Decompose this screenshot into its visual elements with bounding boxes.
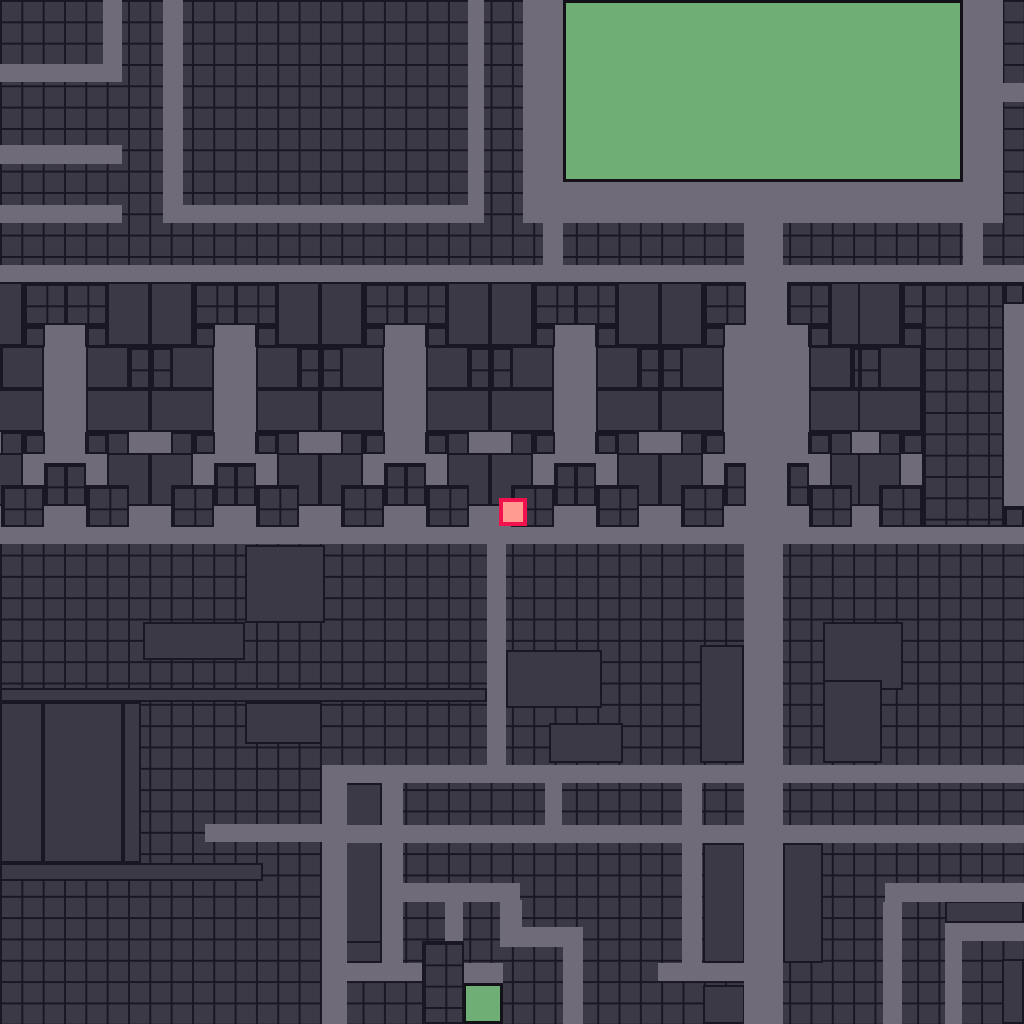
- house-cell-cluster: [554, 463, 576, 506]
- house-block: [660, 389, 724, 432]
- road-segment: [183, 205, 468, 223]
- road-segment: [883, 902, 902, 1024]
- road-segment: [0, 64, 122, 82]
- building-block: [945, 901, 1024, 923]
- house-block: [511, 346, 554, 389]
- building-block: [700, 645, 744, 763]
- house-cell-cluster: [128, 346, 150, 389]
- cell-block: [922, 282, 1004, 527]
- house-cell-cluster: [638, 346, 660, 389]
- house-cell-cluster: [404, 282, 447, 325]
- house-block: [256, 346, 299, 389]
- cell-block: [422, 941, 464, 1024]
- house-cell-cluster: [681, 485, 724, 527]
- house-block: [660, 282, 703, 346]
- building-block: [245, 545, 325, 623]
- house-block: [858, 282, 901, 346]
- house-cell-cluster: [384, 463, 406, 506]
- road-segment: [945, 923, 1024, 941]
- road-segment: [945, 941, 962, 1024]
- building-block: [549, 723, 623, 763]
- house-cell-cluster: [85, 432, 107, 454]
- city-map-viewport[interactable]: [0, 0, 1024, 1024]
- road-segment: [163, 0, 183, 223]
- house-cell-cluster: [64, 282, 107, 325]
- road-segment: [103, 0, 122, 64]
- road-segment: [682, 765, 702, 981]
- house-block: [809, 346, 852, 389]
- house-cell-cluster: [426, 485, 469, 527]
- house-block: [596, 389, 660, 432]
- house-cell-cluster: [44, 463, 66, 506]
- house-cell-cluster: [425, 325, 447, 347]
- house-block: [681, 346, 724, 389]
- house-cell-cluster: [724, 463, 746, 506]
- building-block: [0, 863, 263, 881]
- house-cell-cluster: [595, 432, 617, 454]
- house-block: [341, 346, 384, 389]
- house-cell-cluster: [341, 485, 384, 527]
- house-cell-cluster: [0, 346, 2, 389]
- house-cell-cluster: [298, 346, 320, 389]
- house-cell-cluster: [808, 432, 830, 454]
- house-block: [86, 389, 150, 432]
- house-cell-cluster: [468, 346, 490, 389]
- house-cell-cluster: [533, 325, 555, 347]
- house-cell-cluster: [703, 325, 725, 347]
- road-segment: [0, 145, 122, 164]
- house-block: [277, 282, 320, 346]
- house-cell-cluster: [256, 485, 299, 527]
- road-segment: [487, 544, 506, 765]
- road-segment: [462, 963, 503, 983]
- road-segment: [0, 265, 1024, 282]
- house-block: [447, 282, 490, 346]
- house-block: [86, 346, 129, 389]
- house-cell-cluster: [809, 485, 852, 527]
- house-cell-cluster: [85, 325, 107, 347]
- house-cell-cluster: [574, 463, 596, 506]
- house-cell-cluster: [64, 463, 86, 506]
- house-block: [0, 389, 44, 432]
- road-segment: [658, 963, 783, 981]
- house-cell-cluster: [214, 463, 236, 506]
- road-segment: [1003, 83, 1024, 102]
- house-cell-cluster: [425, 432, 447, 454]
- house-cell-cluster: [808, 325, 830, 347]
- house-block: [171, 346, 214, 389]
- house-block: [320, 389, 384, 432]
- house-cell-cluster: [86, 485, 129, 527]
- park-area: [563, 0, 963, 182]
- cell-block: [1003, 282, 1024, 304]
- road-segment: [322, 765, 1024, 783]
- building-block: [1002, 959, 1024, 1024]
- building-block: [783, 843, 823, 963]
- house-cell-cluster: [363, 325, 385, 347]
- house-cell-cluster: [193, 282, 236, 325]
- house-cell-cluster: [23, 282, 66, 325]
- building-block: [143, 622, 245, 660]
- house-cell-cluster: [404, 463, 426, 506]
- house-block: [320, 282, 363, 346]
- house-cell-cluster: [574, 282, 617, 325]
- building-block: [343, 941, 382, 963]
- road-segment: [563, 927, 583, 1024]
- building-block: [123, 702, 141, 863]
- house-block: [107, 282, 150, 346]
- house-block: [490, 389, 554, 432]
- house-cell-cluster: [234, 463, 256, 506]
- building-block: [703, 985, 745, 1024]
- house-cell-cluster: [660, 346, 682, 389]
- house-cell-cluster: [23, 325, 45, 347]
- house-cell-cluster: [490, 346, 512, 389]
- house-block: [426, 346, 469, 389]
- house-block: [596, 346, 639, 389]
- road-segment: [382, 783, 403, 963]
- building-block: [703, 843, 745, 963]
- house-cell-cluster: [193, 432, 215, 454]
- building-block: [823, 680, 882, 763]
- building-block: [506, 650, 602, 708]
- house-block: [879, 346, 922, 389]
- house-cell-cluster: [596, 485, 639, 527]
- player-marker[interactable]: [499, 498, 527, 526]
- road-segment: [0, 527, 1024, 544]
- road-segment: [744, 182, 783, 1024]
- road-segment: [0, 205, 122, 223]
- house-cell-cluster: [234, 282, 277, 325]
- house-block: [490, 282, 533, 346]
- house-cell-cluster: [23, 432, 45, 454]
- house-cell-cluster: [879, 485, 922, 527]
- house-cell-cluster: [150, 346, 172, 389]
- park-area: [463, 983, 503, 1024]
- road-segment: [205, 824, 322, 842]
- house-cell-cluster: [255, 325, 277, 347]
- house-cell-cluster: [533, 282, 576, 325]
- house-cell-cluster: [1, 485, 44, 527]
- house-block: [150, 389, 214, 432]
- house-block: [426, 389, 490, 432]
- building-block: [0, 688, 487, 702]
- house-cell-cluster: [703, 282, 746, 325]
- house-block: [617, 282, 660, 346]
- house-cell-cluster: [595, 325, 617, 347]
- road-segment: [545, 783, 562, 825]
- road-segment: [322, 765, 347, 1024]
- house-cell-cluster: [533, 432, 555, 454]
- building-block: [43, 702, 123, 863]
- house-cell-cluster: [171, 485, 214, 527]
- road-segment: [543, 223, 563, 265]
- house-cell-cluster: [858, 346, 880, 389]
- road-segment: [468, 0, 484, 223]
- house-block: [858, 389, 922, 432]
- house-cell-cluster: [255, 432, 277, 454]
- house-cell-cluster: [193, 325, 215, 347]
- house-cell-cluster: [363, 432, 385, 454]
- building-block: [345, 783, 382, 963]
- house-block: [256, 389, 320, 432]
- house-cell-cluster: [320, 346, 342, 389]
- road-segment: [963, 0, 1003, 182]
- house-cell-cluster: [787, 463, 809, 506]
- house-cell-cluster: [901, 325, 923, 347]
- house-cell-cluster: [901, 432, 923, 454]
- building-block: [245, 702, 322, 744]
- building-block: [0, 702, 43, 863]
- house-block: [1, 346, 44, 389]
- house-cell-cluster: [363, 282, 406, 325]
- house-cell-cluster: [703, 432, 725, 454]
- cell-block: [1003, 506, 1024, 527]
- road-segment: [885, 883, 1024, 902]
- house-block: [150, 282, 193, 346]
- house-block: [0, 282, 23, 346]
- house-cell-cluster: [787, 282, 830, 325]
